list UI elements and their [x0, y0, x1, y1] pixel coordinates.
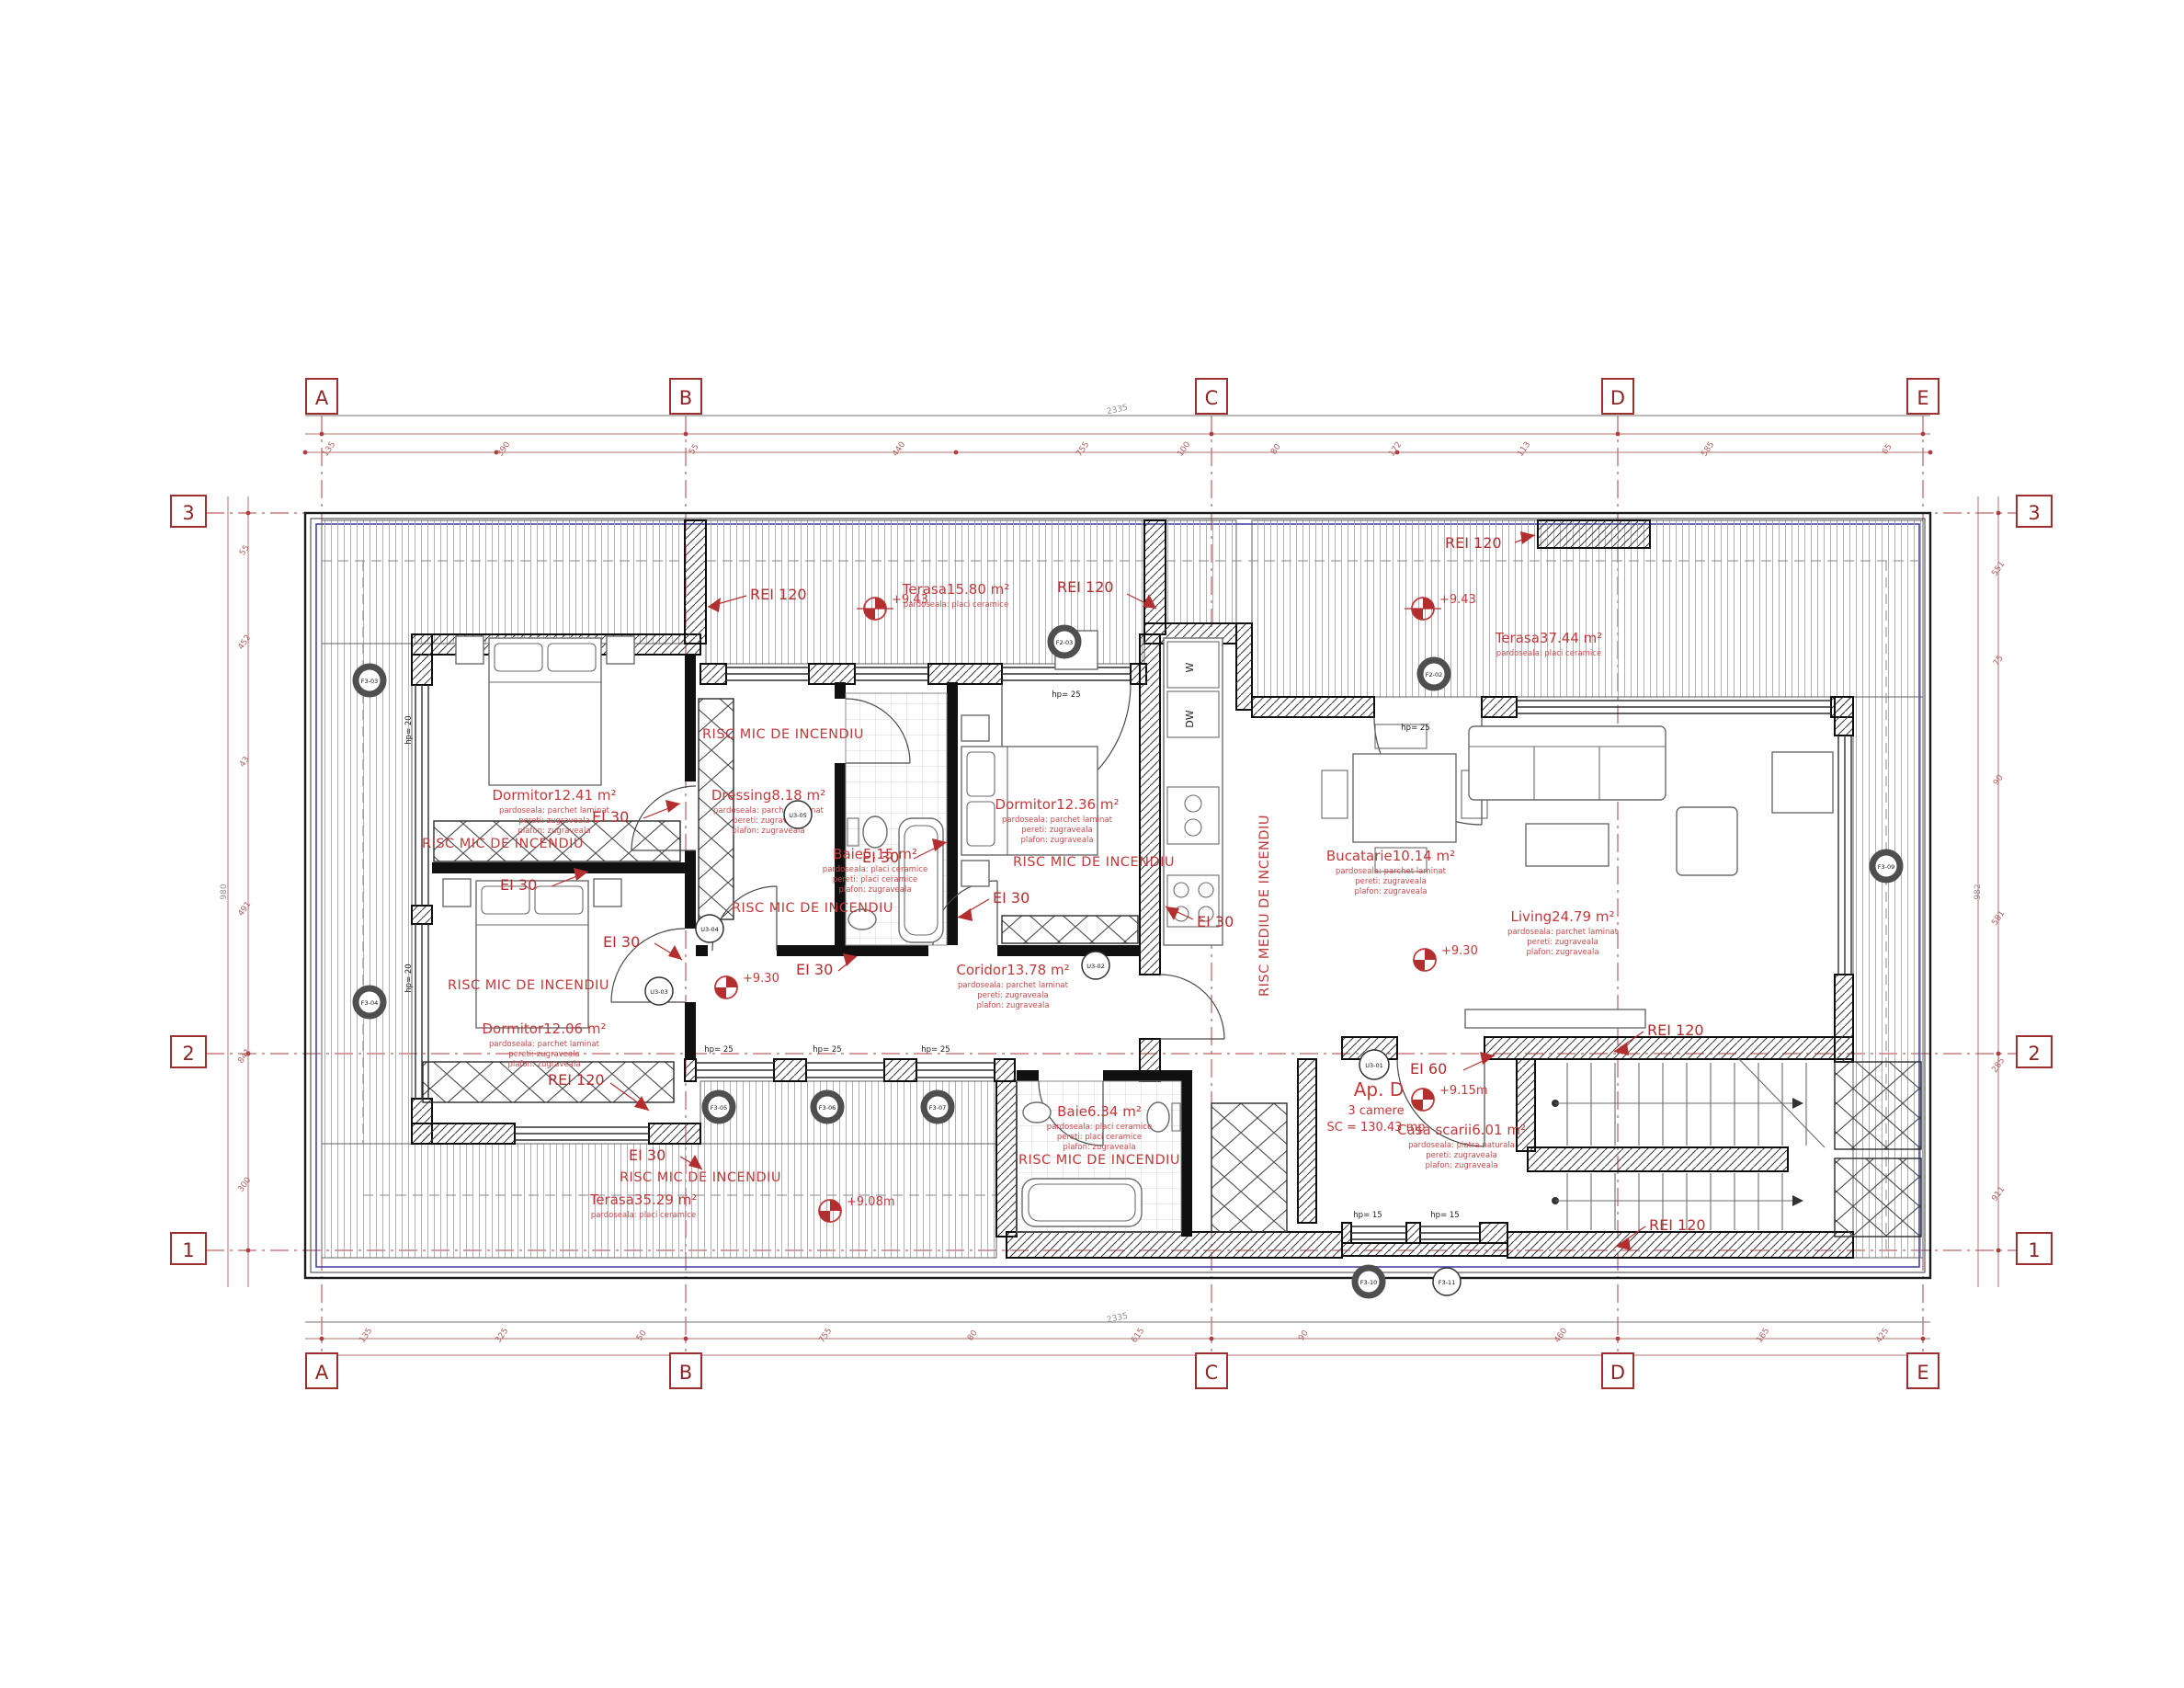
dim-top: 390: [495, 440, 512, 459]
elevation-text: +9.08m: [847, 1195, 895, 1209]
room-finish: pardoseala: parchet laminat: [1507, 928, 1619, 937]
dim-bottom: 90: [1297, 1329, 1311, 1342]
door-marker: U3-02: [1086, 963, 1105, 970]
ei30-annotation: EI 30: [603, 933, 682, 960]
ei30-text: EI 30: [993, 889, 1029, 907]
dim-right: 581: [1990, 909, 2007, 928]
dishwasher-label: DW: [1184, 710, 1196, 727]
risc-mediu-label: RISC MEDIU DE INCENDIU: [1257, 815, 1272, 997]
shaft-box: [1211, 1103, 1287, 1232]
washer-label: W: [1184, 662, 1196, 672]
dim-bottom-overall: 2335: [1106, 1312, 1128, 1326]
ei30-text: EI 30: [796, 961, 833, 978]
apartment-id: Ap. D: [1354, 1078, 1405, 1101]
risc-mic-label: RISC MIC DE INCENDIU: [702, 727, 864, 742]
apartment-area: SC = 130.43 mp: [1326, 1121, 1425, 1135]
dim-top: 65: [1881, 442, 1894, 456]
room-label-living: Living24.79 m²: [1511, 908, 1615, 925]
floor-plan-sheet: 2335 135 390 55 440 755 100 80 172 113 5…: [0, 0, 2184, 1688]
room-finish: plafon: zugraveala: [1063, 1143, 1135, 1152]
grid-row-1-right: 1: [2028, 1239, 2040, 1261]
terrace-strip-left: [322, 644, 412, 1144]
room-finish: pereti: zugraveala: [1527, 938, 1598, 947]
dim-top: 755: [1075, 440, 1091, 459]
elevation-text: +9.30: [1441, 944, 1478, 958]
grid-row-3-right: 3: [2028, 502, 2040, 524]
dim-top-overall: 2335: [1106, 404, 1128, 417]
room-finish: pereti: zugraveala: [508, 1050, 579, 1059]
room-finish: pardoseala: piatra naturala: [1408, 1141, 1515, 1150]
wardrobe-corridor: [1002, 916, 1138, 943]
room-label-dorm1: Dormitor12.41 m²: [493, 787, 617, 804]
kitchen-counter: [1164, 638, 1223, 945]
hp-annotation: hp= 20: [404, 715, 414, 744]
risc-mic-label: RISC MIC DE INCENDIU: [448, 978, 609, 993]
dim-bottom: 135: [358, 1327, 374, 1345]
room-finish: pereti: zugraveala: [1355, 877, 1426, 886]
dim-top: 585: [1700, 440, 1716, 459]
dim-left: 491: [236, 900, 253, 918]
hp-annotation: hp= 15: [1430, 1211, 1459, 1220]
hp-annotation: hp= 25: [921, 1045, 950, 1055]
room-finish: pereti: zugraveala: [1426, 1151, 1496, 1160]
room-label-dorm3: Dormitor12.36 m²: [995, 796, 1120, 813]
room-label-bucatarie: Bucatarie10.14 m²: [1326, 848, 1455, 864]
dim-bottom: 425: [1874, 1327, 1891, 1345]
terrace-planter-2: [1772, 752, 1833, 813]
rei120-text: REI 120: [1445, 534, 1502, 552]
grid-row-2-left: 2: [182, 1043, 194, 1065]
room-finish: pereti: zugraveala: [977, 991, 1048, 1000]
elevation-text: +9.15m: [1439, 1084, 1488, 1098]
apartment-rooms: 3 camere: [1348, 1104, 1404, 1118]
grid-col-d-bottom: D: [1610, 1362, 1625, 1384]
window-marker: F2-02: [1426, 671, 1443, 679]
dim-top: 55: [688, 442, 701, 456]
dim-left: 55: [238, 543, 252, 557]
grid-col-d-top: D: [1610, 387, 1625, 409]
room-finish: pardoseala: parchet laminat: [958, 981, 1069, 990]
room-finish: pereti: placi ceramice: [1057, 1133, 1142, 1142]
dim-bottom: 80: [966, 1329, 980, 1342]
hp-annotation: hp= 25: [813, 1045, 841, 1055]
door-kitchen: [1160, 975, 1224, 1039]
grid-row-3-left: 3: [182, 502, 194, 524]
windows-corridor-bottom: [696, 1063, 995, 1078]
room-label-dressing: Dressing8.18 m²: [711, 787, 825, 804]
door-marker: U3-05: [789, 812, 807, 819]
dim-left-overall: 980: [220, 884, 229, 899]
ei60-annotation: EI 60: [1410, 1052, 1495, 1078]
room-finish: pardoseala: parchet laminat: [1336, 867, 1447, 876]
grid-row-2-right: 2: [2028, 1043, 2040, 1065]
ei30-text: EI 30: [592, 808, 629, 826]
elevation-text: +9.43: [1439, 593, 1476, 607]
elevation-text: +9.30: [743, 972, 779, 986]
window-living-top: [1517, 701, 1831, 713]
dim-bottom: 755: [817, 1327, 834, 1345]
risc-mic-label: RISC MIC DE INCENDIU: [1013, 855, 1175, 870]
window-marker: F3-05: [711, 1104, 728, 1112]
ei30-text: EI 30: [1197, 913, 1234, 930]
window-living-right: [1838, 736, 1851, 975]
ei30-text: EI 30: [500, 876, 537, 894]
ei30-text: EI 30: [862, 849, 899, 866]
dim-left: 43: [238, 755, 252, 769]
grid-col-e-bottom: E: [1917, 1362, 1928, 1384]
room-finish: plafon: zugraveala: [507, 1060, 580, 1069]
room-finish: plafon: zugraveala: [1425, 1161, 1497, 1170]
rei120-text: REI 120: [1647, 1021, 1704, 1039]
room-finish: plafon: zugraveala: [1020, 836, 1093, 845]
room-finish: pardoseala: parchet laminat: [489, 1040, 600, 1049]
ei60-text: EI 60: [1410, 1060, 1447, 1078]
dim-bottom: 615: [1130, 1327, 1146, 1345]
dim-bottom: 325: [494, 1327, 510, 1345]
dim-left: 300: [236, 1176, 253, 1194]
dim-bottom: 50: [635, 1329, 649, 1342]
elevation-text: +9.43: [892, 593, 928, 607]
room-finish: plafon: zugraveala: [976, 1001, 1049, 1010]
sofa: [1469, 726, 1666, 800]
door-marker: U3-03: [650, 988, 668, 996]
hp-annotation: hp= 15: [1353, 1211, 1382, 1220]
dim-left: 841: [236, 1047, 253, 1066]
floor-plan-drawing: 2335 135 390 55 440 755 100 80 172 113 5…: [0, 0, 2184, 1688]
room-finish: pardoseala: placi ceramice: [823, 865, 927, 874]
rei120-text: REI 120: [750, 586, 807, 603]
elevation-marker: +9.15m: [1412, 1084, 1488, 1111]
window-marker: F3-09: [1878, 863, 1895, 871]
dim-right: 551: [1990, 560, 2007, 578]
dim-right: 75: [1992, 654, 2006, 667]
room-finish: plafon: zugraveala: [1526, 948, 1598, 957]
ei30-text: EI 30: [629, 1146, 665, 1164]
room-label-terasa35: Terasa35.29 m²: [589, 1192, 698, 1208]
rei120-text: REI 120: [548, 1071, 605, 1089]
bed-dorm1: [456, 636, 634, 785]
ei30-text: EI 30: [603, 933, 640, 951]
risc-mic-label: RISC MIC DE INCENDIU: [1018, 1153, 1180, 1168]
dim-right: 90: [1992, 773, 2006, 787]
window-marker: F3-06: [819, 1104, 836, 1112]
room-label-coridor: Coridor13.78 m²: [956, 962, 1069, 978]
hp-annotation: hp= 25: [704, 1045, 733, 1055]
armchair: [1677, 807, 1737, 875]
rei120-text: REI 120: [1649, 1216, 1706, 1234]
dim-bottom: 165: [1755, 1327, 1771, 1345]
window-marker: F3-03: [361, 678, 379, 685]
window-dorm1-left: [415, 685, 428, 906]
room-finish: pereti: zugraveala: [518, 816, 589, 826]
dim-top: 100: [1176, 440, 1192, 459]
dim-top: 80: [1269, 442, 1283, 456]
room-finish: plafon: zugraveala: [1354, 887, 1427, 896]
room-label-baie6: Baie6.34 m²: [1057, 1103, 1142, 1120]
risc-mic-label: RISC MIC DE INCENDIU: [422, 837, 584, 851]
window-marker: F3-10: [1360, 1279, 1378, 1286]
dim-top: 135: [321, 440, 337, 459]
dim-top: 440: [891, 440, 907, 459]
room-finish: plafon: zugraveala: [838, 885, 911, 895]
window-marker: F3-07: [929, 1104, 947, 1112]
xwall-right-2: [1835, 1158, 1921, 1237]
grid-col-a-top: A: [315, 387, 329, 409]
coffee-table: [1526, 824, 1609, 866]
dim-top: 172: [1387, 440, 1404, 459]
bed-dorm2: [443, 879, 621, 1028]
room-finish: pardoseala: placi ceramice: [1047, 1123, 1152, 1132]
grid-col-a-bottom: A: [315, 1362, 329, 1384]
risc-mic-label: RISC MIC DE INCENDIU: [732, 901, 893, 916]
dim-right: 285: [1990, 1056, 2007, 1075]
grid-col-b-top: B: [679, 387, 692, 409]
grid-row-1-left: 1: [182, 1239, 194, 1261]
room-finish: pardoseala: placi ceramice: [1496, 649, 1601, 658]
room-label-terasa37: Terasa37.44 m²: [1495, 630, 1603, 646]
terrace-strip-top-left: [322, 520, 685, 644]
door-marker: U3-04: [700, 926, 719, 933]
room-finish: pardoseala: placi ceramice: [591, 1211, 696, 1220]
hp-annotation: hp= 20: [404, 964, 414, 992]
stairs: [1552, 1057, 1825, 1230]
grid-col-b-bottom: B: [679, 1362, 692, 1384]
hp-annotation: hp= 25: [1401, 724, 1429, 733]
room-finish: plafon: zugraveala: [518, 827, 590, 836]
room-finish: pardoseala: parchet laminat: [1002, 815, 1113, 825]
elevation-marker: +9.30: [1414, 944, 1478, 971]
window-dorm2-bottom: [515, 1127, 649, 1140]
tv-stand: [1465, 1009, 1645, 1028]
risc-mic-label: RISC MIC DE INCENDIU: [620, 1170, 781, 1185]
hp-annotation: hp= 25: [1052, 690, 1080, 700]
window-marker: F3-11: [1439, 1279, 1456, 1286]
dim-bottom: 460: [1553, 1327, 1569, 1345]
dim-right: 911: [1990, 1185, 2007, 1203]
window-marker: F3-04: [361, 999, 379, 1007]
rei120-text: REI 120: [1057, 578, 1114, 596]
grid-col-c-top: C: [1205, 387, 1219, 409]
dim-left: 452: [236, 633, 253, 652]
ei30-annotation: EI 30: [796, 953, 857, 978]
grid-col-e-top: E: [1917, 387, 1928, 409]
window-marker: F2-03: [1056, 639, 1074, 646]
door-marker-u301: U3-01: [1365, 1062, 1383, 1069]
room-finish: pereti: placi ceramice: [833, 875, 917, 884]
room-label-dorm2: Dormitor12.06 m²: [483, 1021, 607, 1037]
grid-col-c-bottom: C: [1205, 1362, 1219, 1384]
xwall-right-1: [1835, 1062, 1921, 1149]
elevation-marker: +9.30: [715, 972, 779, 998]
terrace-passage: [1166, 520, 1236, 623]
dim-right-overall: 982: [1974, 884, 1983, 899]
room-finish: pereti: zugraveala: [1021, 826, 1092, 835]
dim-top: 113: [1516, 440, 1532, 459]
